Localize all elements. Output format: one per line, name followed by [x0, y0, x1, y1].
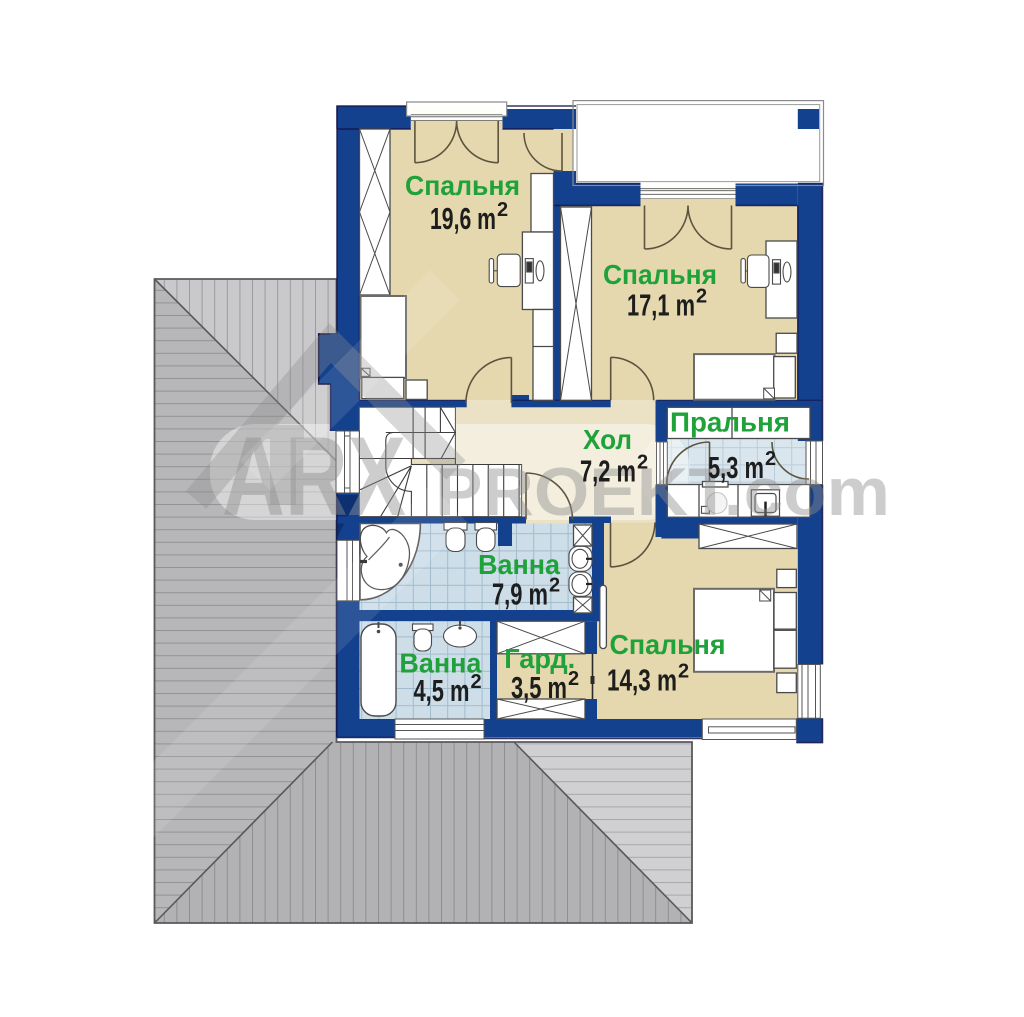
svg-text:5,3 m: 5,3 m: [708, 450, 764, 485]
svg-text:4,5 m: 4,5 m: [414, 673, 470, 708]
svg-text:PROEKT.com: PROEKT.com: [435, 454, 890, 530]
svg-text:2: 2: [637, 452, 648, 474]
svg-text:2: 2: [471, 671, 482, 693]
svg-text:2: 2: [497, 199, 508, 221]
svg-text:2: 2: [696, 286, 707, 308]
svg-text:2: 2: [678, 661, 689, 683]
svg-text:7,9 m: 7,9 m: [492, 577, 548, 612]
svg-text:Хол: Хол: [583, 424, 632, 455]
svg-text:2: 2: [549, 575, 560, 597]
svg-text:19,6 m: 19,6 m: [430, 201, 496, 236]
svg-text:Спальня: Спальня: [610, 629, 726, 660]
svg-text:3,5 m: 3,5 m: [511, 670, 567, 705]
svg-text:Спальня: Спальня: [405, 170, 520, 201]
svg-text:14,3 m: 14,3 m: [607, 663, 677, 698]
svg-text:Пральня: Пральня: [670, 407, 790, 438]
svg-text:7,2 m: 7,2 m: [580, 454, 636, 489]
svg-text:2: 2: [765, 448, 776, 470]
svg-text:2: 2: [568, 668, 579, 690]
svg-text:17,1 m: 17,1 m: [627, 288, 695, 323]
